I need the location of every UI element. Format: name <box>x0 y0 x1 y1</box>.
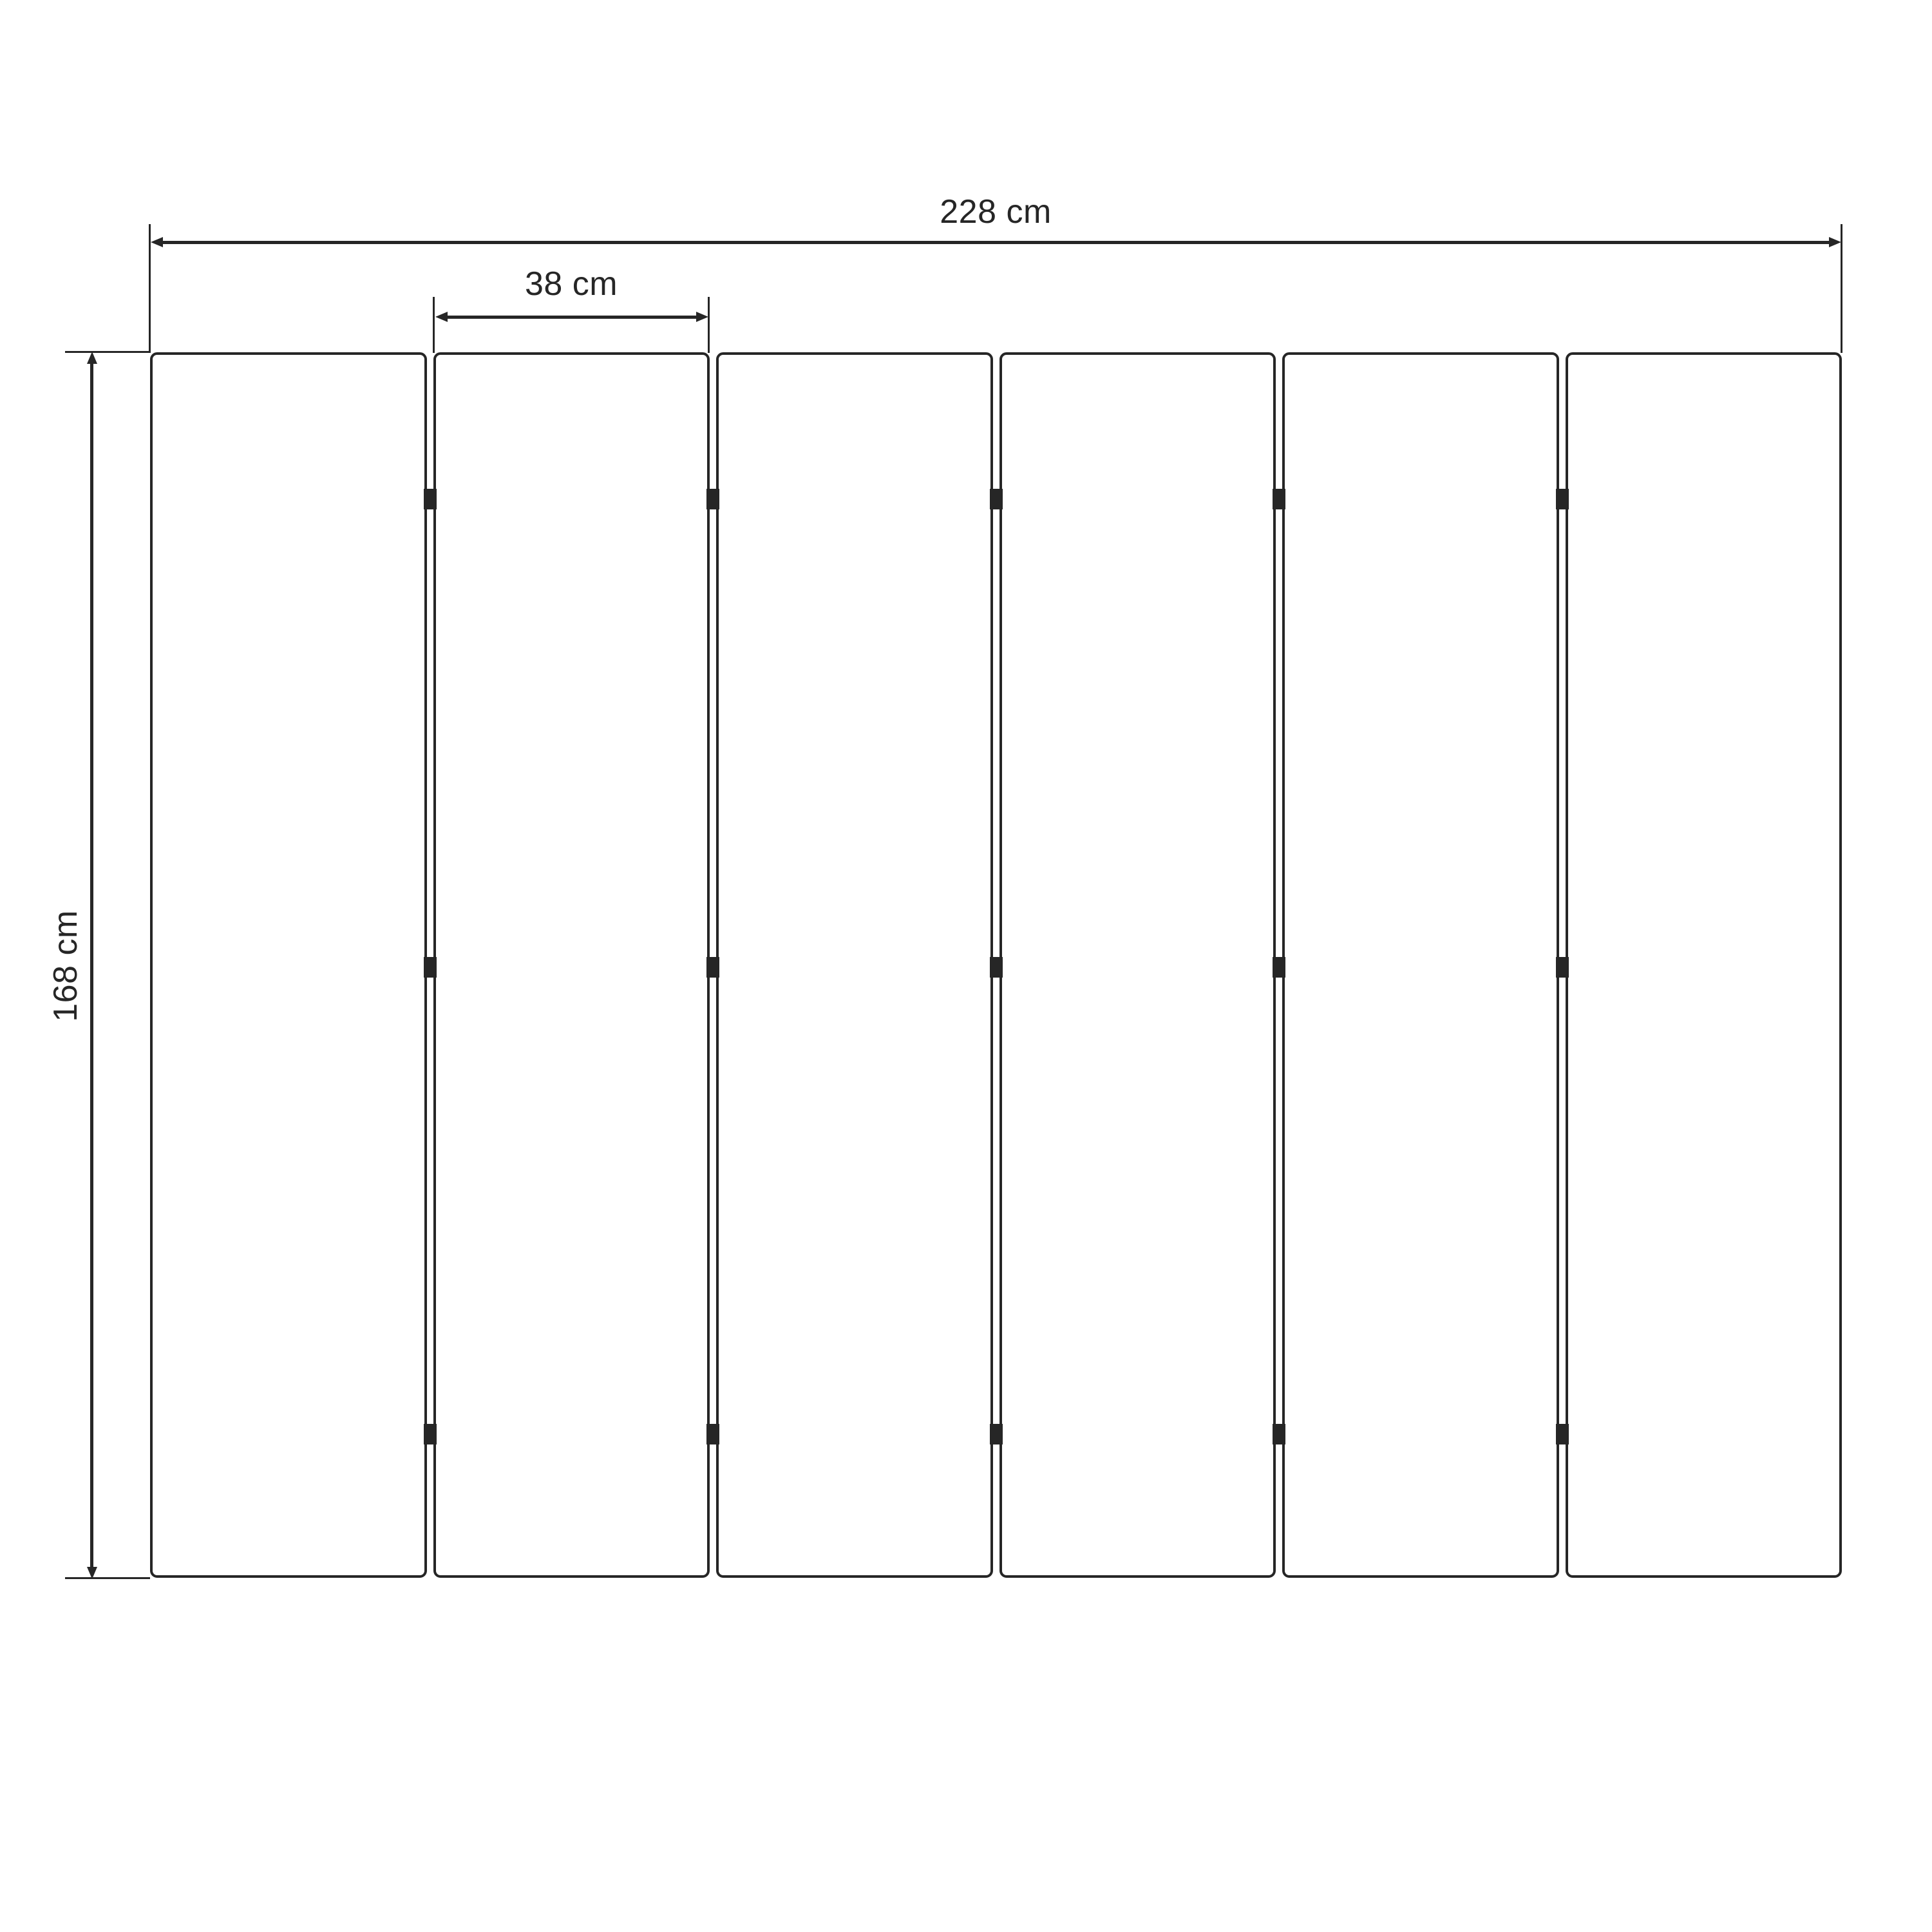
panel-5 <box>1282 352 1559 1578</box>
height-label: 168 cm <box>46 869 85 1063</box>
panels-row <box>150 352 1842 1578</box>
height-extension-line-top <box>65 351 150 353</box>
hinge-mark <box>706 957 719 978</box>
panel-gap-1 <box>427 352 433 1578</box>
panel-width-extension-line-left <box>433 297 435 353</box>
hinge-mark <box>1273 957 1285 978</box>
height-extension-line-bottom <box>65 1577 150 1579</box>
height-arrowhead-bottom <box>87 1567 97 1579</box>
hinge-mark <box>1273 489 1285 509</box>
total-width-arrowhead-right <box>1829 237 1841 247</box>
hinge-mark <box>706 489 719 509</box>
panel-6 <box>1566 352 1842 1578</box>
panel-width-arrowhead-left <box>435 312 448 322</box>
hinge-mark <box>706 1424 719 1444</box>
panel-gap-4 <box>1276 352 1282 1578</box>
total-width-label: 228 cm <box>899 193 1092 231</box>
hinge-mark <box>424 957 437 978</box>
dimension-diagram: 228 cm 38 cm 168 cm <box>0 0 1932 1932</box>
hinge-mark <box>1273 1424 1285 1444</box>
height-dimension-line <box>90 363 93 1567</box>
panel-width-label: 38 cm <box>475 265 668 303</box>
hinge-mark <box>424 1424 437 1444</box>
hinge-mark <box>1556 1424 1569 1444</box>
panel-gap-2 <box>710 352 716 1578</box>
height-arrowhead-top <box>87 352 97 364</box>
panel-3 <box>716 352 993 1578</box>
total-width-arrowhead-left <box>151 237 163 247</box>
panel-width-arrowhead-right <box>696 312 708 322</box>
total-width-dimension-line <box>162 241 1830 244</box>
panel-width-dimension-line <box>447 316 697 319</box>
hinge-mark <box>1556 957 1569 978</box>
panel-1 <box>150 352 427 1578</box>
panel-4 <box>999 352 1276 1578</box>
hinge-mark <box>1556 489 1569 509</box>
panel-2 <box>433 352 710 1578</box>
hinge-mark <box>990 1424 1003 1444</box>
hinge-mark <box>990 489 1003 509</box>
panel-width-extension-line-right <box>708 297 710 353</box>
panel-gap-3 <box>993 352 999 1578</box>
hinge-mark <box>424 489 437 509</box>
panel-gap-5 <box>1559 352 1566 1578</box>
hinge-mark <box>990 957 1003 978</box>
